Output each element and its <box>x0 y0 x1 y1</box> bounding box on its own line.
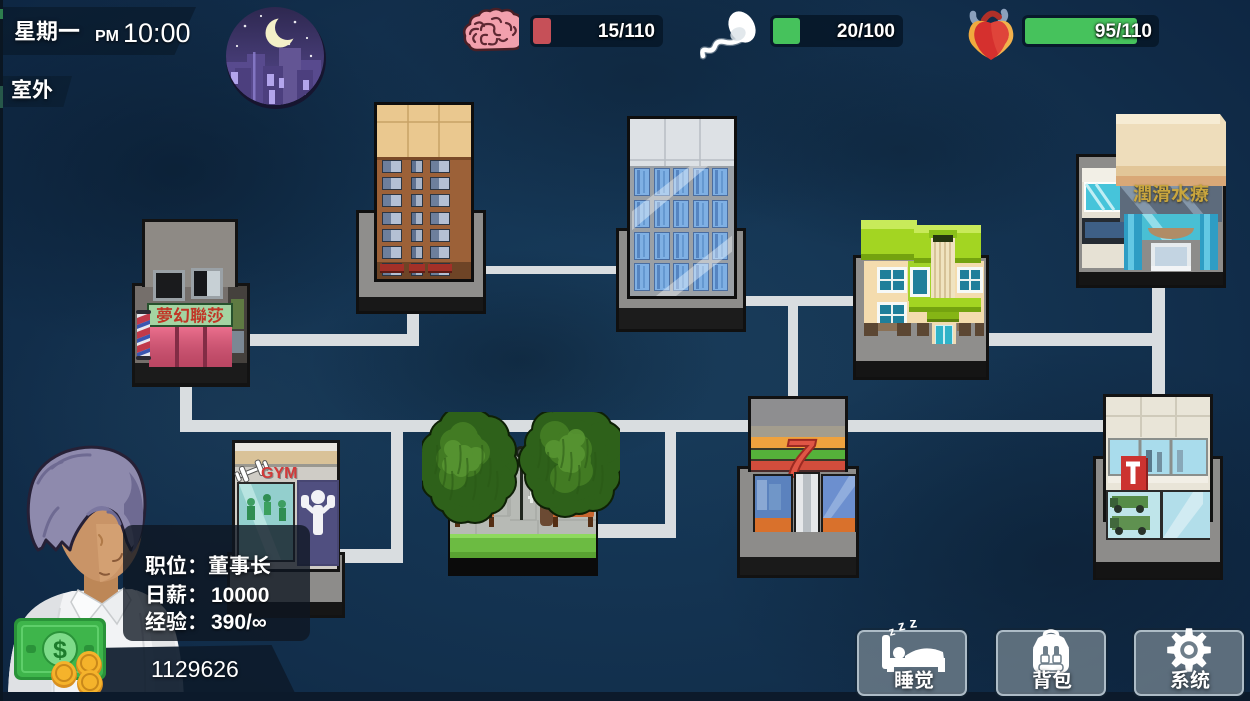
svg-text:z: z <box>909 620 918 632</box>
svg-text:$: $ <box>53 636 67 664</box>
svg-text:z: z <box>896 620 906 634</box>
